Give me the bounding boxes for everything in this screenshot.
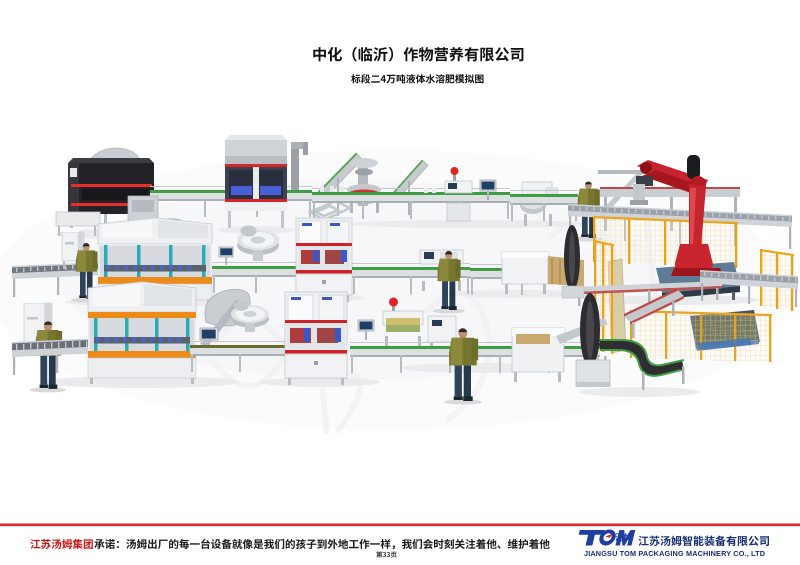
svg-text:JIANGSU TOM PACKAGING MACHINER: JIANGSU TOM PACKAGING MACHINERY CO., LTD: [584, 549, 765, 558]
